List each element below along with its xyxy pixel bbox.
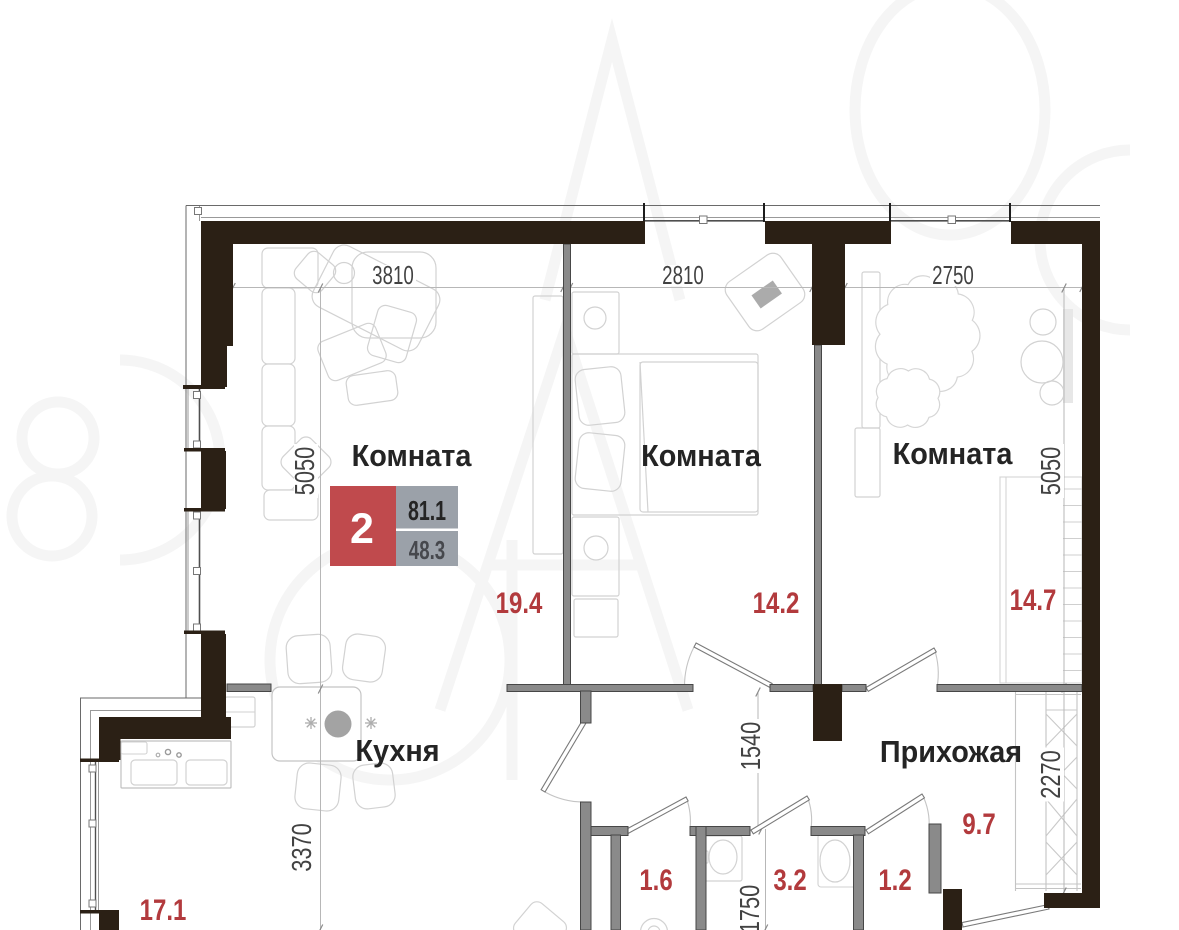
svg-text:1750: 1750 <box>734 885 765 930</box>
svg-text:19.4: 19.4 <box>496 585 543 619</box>
svg-text:Кухня: Кухня <box>355 734 439 768</box>
svg-text:14.7: 14.7 <box>1010 582 1057 616</box>
svg-text:14.2: 14.2 <box>753 585 800 619</box>
svg-text:3810: 3810 <box>372 260 414 290</box>
svg-text:2270: 2270 <box>1035 750 1066 799</box>
svg-text:2: 2 <box>350 505 374 553</box>
svg-text:Комната: Комната <box>352 439 472 473</box>
svg-text:1.6: 1.6 <box>639 862 672 896</box>
svg-text:5050: 5050 <box>289 447 320 496</box>
svg-text:3.2: 3.2 <box>773 862 806 896</box>
svg-text:2810: 2810 <box>662 260 704 290</box>
svg-text:Комната: Комната <box>893 437 1013 471</box>
svg-text:3370: 3370 <box>286 823 317 872</box>
svg-text:1.2: 1.2 <box>878 862 911 896</box>
svg-text:17.1: 17.1 <box>140 892 187 926</box>
svg-text:48.3: 48.3 <box>409 535 445 565</box>
svg-text:1540: 1540 <box>735 722 766 771</box>
svg-text:Прихожая: Прихожая <box>880 735 1022 769</box>
svg-text:Комната: Комната <box>641 439 761 473</box>
svg-text:9.7: 9.7 <box>962 806 995 840</box>
svg-text:2750: 2750 <box>932 260 974 290</box>
svg-text:5050: 5050 <box>1035 447 1066 496</box>
svg-text:81.1: 81.1 <box>408 496 446 527</box>
